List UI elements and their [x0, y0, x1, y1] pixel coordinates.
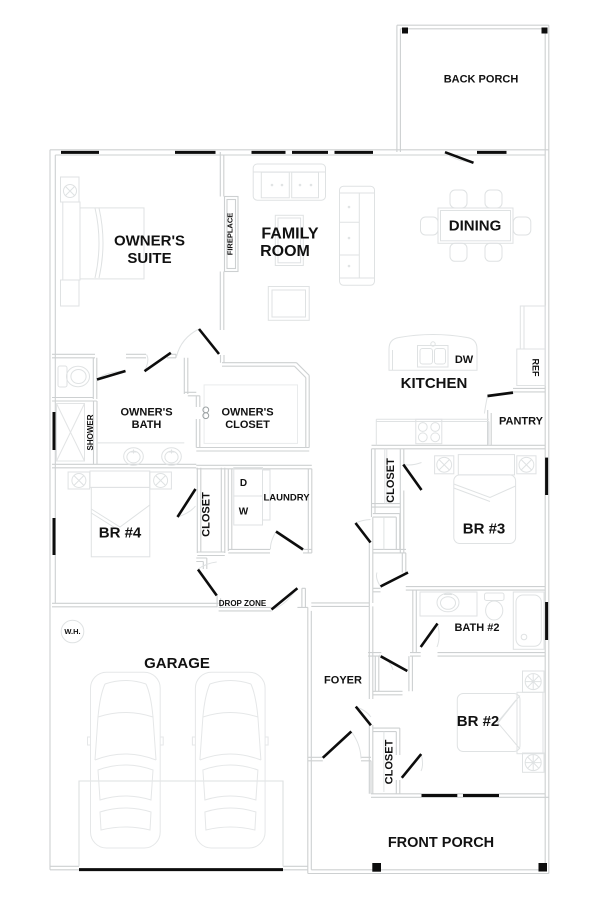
- svg-text:OWNER'S: OWNER'S: [114, 233, 185, 250]
- svg-text:BATH #2: BATH #2: [454, 622, 499, 634]
- svg-text:SUITE: SUITE: [127, 250, 171, 267]
- svg-text:BR #3: BR #3: [463, 521, 506, 538]
- svg-text:PANTRY: PANTRY: [499, 416, 544, 428]
- svg-text:BR #4: BR #4: [99, 525, 142, 542]
- svg-text:LAUNDRY: LAUNDRY: [263, 493, 310, 504]
- svg-text:REF: REF: [531, 359, 541, 378]
- svg-text:FOYER: FOYER: [324, 675, 362, 687]
- svg-text:FAMILY: FAMILY: [261, 226, 319, 243]
- svg-text:DINING: DINING: [449, 218, 502, 235]
- svg-text:FRONT PORCH: FRONT PORCH: [388, 835, 494, 851]
- svg-text:CLOSET: CLOSET: [384, 739, 396, 784]
- svg-text:SHOWER: SHOWER: [86, 414, 95, 450]
- svg-text:OWNER'S: OWNER'S: [221, 407, 273, 419]
- svg-text:CLOSET: CLOSET: [201, 492, 213, 537]
- svg-text:KITCHEN: KITCHEN: [401, 375, 468, 392]
- svg-text:DW: DW: [455, 354, 474, 366]
- svg-text:ROOM: ROOM: [260, 243, 310, 260]
- svg-text:W.H.: W.H.: [64, 627, 80, 636]
- svg-text:CLOSET: CLOSET: [225, 419, 270, 431]
- svg-text:CLOSET: CLOSET: [385, 458, 397, 503]
- svg-text:W: W: [239, 507, 249, 518]
- svg-text:GARAGE: GARAGE: [144, 655, 210, 672]
- svg-text:BATH: BATH: [132, 419, 162, 431]
- svg-text:FIREPLACE: FIREPLACE: [226, 213, 235, 256]
- svg-text:DROP ZONE: DROP ZONE: [219, 599, 267, 608]
- svg-text:BR #2: BR #2: [457, 713, 500, 730]
- svg-text:D: D: [240, 478, 247, 489]
- svg-text:BACK PORCH: BACK PORCH: [444, 74, 519, 86]
- svg-text:OWNER'S: OWNER'S: [120, 407, 172, 419]
